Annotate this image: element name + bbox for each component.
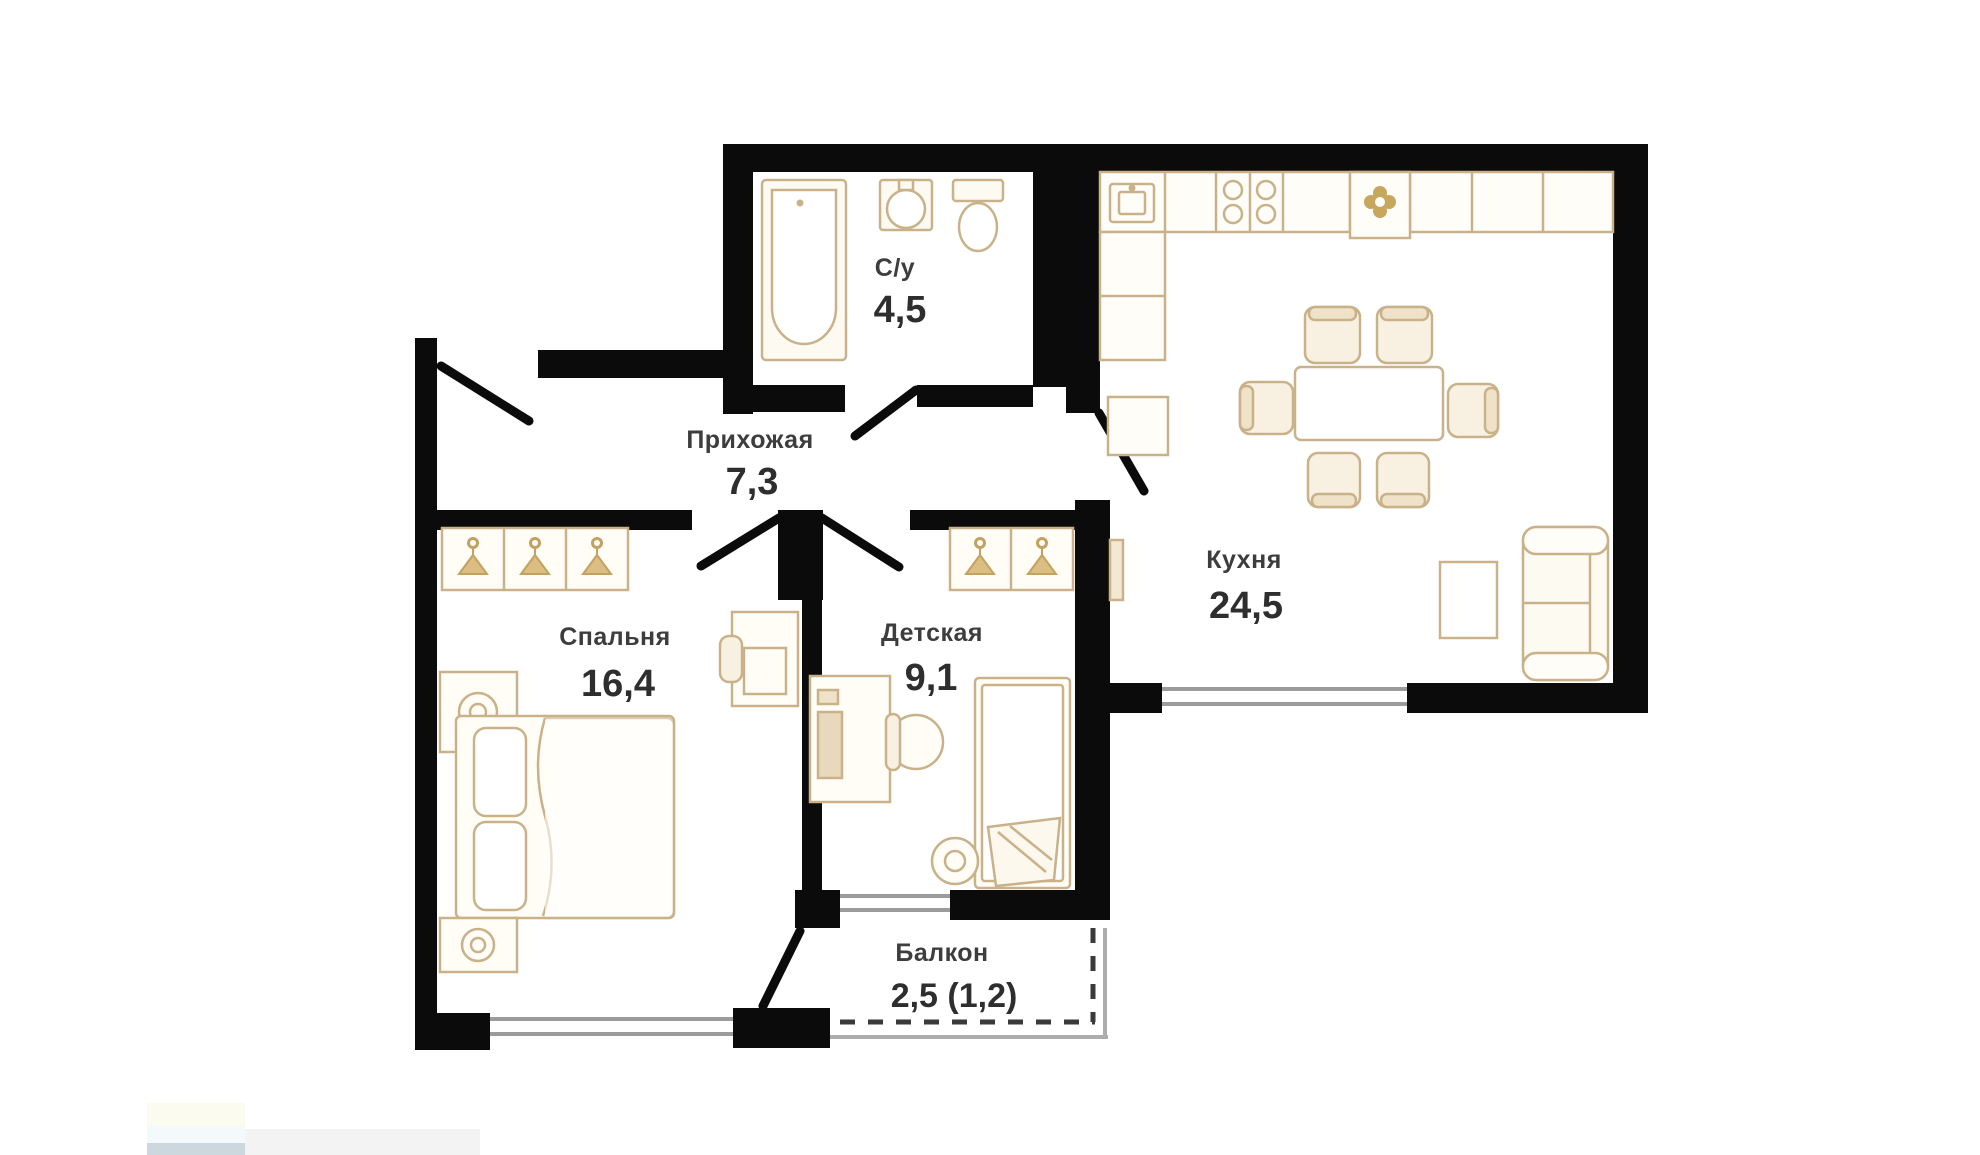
- radiator: [1110, 540, 1123, 600]
- bathroom-door-swing: [855, 390, 916, 436]
- chair: [1240, 382, 1293, 434]
- wall-bath-kitchen-divider: [1033, 144, 1100, 387]
- balcony-area: 2,5 (1,2): [891, 977, 1018, 1015]
- window-kitchen: [1162, 689, 1407, 704]
- wall-divider-stub-top: [778, 510, 823, 600]
- wall-bedroom-bottom-left: [415, 1013, 490, 1050]
- wall-hallway-top-left: [538, 350, 723, 378]
- wall-kitchen-bottom-right: [1407, 683, 1648, 713]
- children-desk: [810, 676, 890, 802]
- floor-plan-drawing: С/у 4,5 Прихожая 7,3 Кухня 24,5 Спальня …: [0, 0, 1980, 1155]
- dining-table: [1295, 367, 1443, 440]
- pillow: [474, 728, 526, 816]
- kitchen-area: 24,5: [1209, 585, 1283, 627]
- bathtub-icon: [762, 180, 846, 360]
- wall-bedroom-bottom-corner: [733, 1008, 830, 1048]
- bathroom-label: С/у: [875, 254, 915, 282]
- floor-plan: С/у 4,5 Прихожая 7,3 Кухня 24,5 Спальня …: [0, 0, 1980, 1155]
- children-wardrobe: [950, 528, 1073, 590]
- stool: [932, 838, 978, 884]
- wall-top: [723, 144, 1648, 172]
- wall-outer-left: [415, 338, 437, 1050]
- wall-kitchen-right: [1613, 144, 1648, 713]
- hallway-area: 7,3: [726, 461, 779, 503]
- wall-bathroom-bottom-right: [917, 385, 1033, 407]
- double-bed: [456, 716, 674, 918]
- chair: [1448, 384, 1498, 437]
- fridge: [1100, 232, 1165, 360]
- pillow: [474, 822, 526, 910]
- balcony-label: Балкон: [895, 939, 988, 967]
- desk-chair: [886, 714, 943, 770]
- chair: [1308, 453, 1360, 507]
- kitchen-label: Кухня: [1206, 546, 1282, 574]
- furniture: [440, 172, 1613, 972]
- children-label: Детская: [881, 619, 983, 647]
- kitchen-cabinet: [1108, 397, 1168, 455]
- hallway-label: Прихожая: [686, 426, 813, 454]
- window-bedroom: [490, 1019, 733, 1034]
- window-children: [840, 896, 950, 910]
- pillow: [988, 818, 1060, 886]
- side-table: [1440, 562, 1497, 638]
- toilet-icon: [953, 180, 1003, 251]
- chair: [1377, 307, 1432, 363]
- entrance-door-swing: [441, 366, 529, 421]
- single-bed: [975, 678, 1070, 888]
- bedroom-desk: [720, 612, 798, 706]
- wall-divider-step: [1066, 385, 1100, 413]
- children-door-swing: [822, 518, 899, 567]
- wall-children-bottom: [950, 890, 1110, 920]
- chair: [1377, 453, 1429, 507]
- children-area: 9,1: [905, 657, 958, 699]
- bedroom-label: Спальня: [559, 623, 671, 651]
- sink-icon: [880, 180, 932, 230]
- chair: [1305, 307, 1360, 363]
- sofa: [1523, 527, 1608, 680]
- bedroom-area: 16,4: [581, 663, 655, 705]
- wall-bathroom-left: [723, 144, 753, 414]
- bathroom-area: 4,5: [874, 289, 927, 331]
- wall-bathroom-bottom-left: [723, 385, 845, 412]
- plant-icon: [1350, 172, 1410, 238]
- bedroom-door-swing: [701, 518, 779, 566]
- balcony-door-swing: [763, 931, 800, 1006]
- wall-divider-stub-bottom: [795, 890, 840, 928]
- nightstand: [440, 918, 517, 972]
- bedroom-wardrobe: [442, 528, 628, 590]
- wall-children-right: [1075, 500, 1110, 920]
